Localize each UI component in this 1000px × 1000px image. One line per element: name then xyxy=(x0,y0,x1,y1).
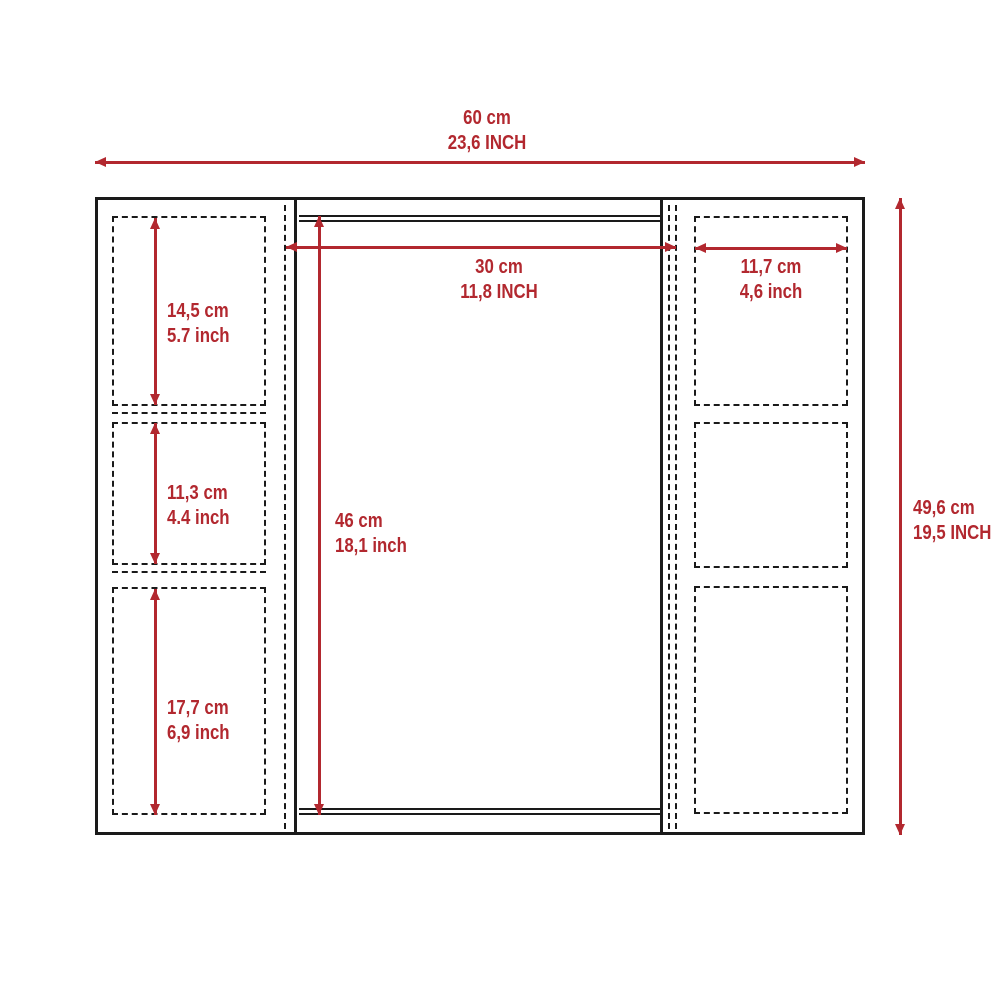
right-shelf-width-arrow xyxy=(695,247,847,250)
left-shelf-bottom-height-arrow xyxy=(154,589,157,815)
right-shelf-width-inch: 4,6 inch xyxy=(712,280,830,305)
overall-height-inch: 19,5 INCH xyxy=(913,521,991,546)
overall-height-label: 49,6 cm 19,5 INCH xyxy=(913,496,991,546)
left-shelf-top-label: 14,5 cm 5.7 inch xyxy=(167,299,230,349)
mirror-width-arrow xyxy=(286,246,676,249)
mirror-height-inch: 18,1 inch xyxy=(335,534,407,559)
right-center-divider-line xyxy=(660,199,663,833)
left-shelf-divider-2-dashed-line xyxy=(112,571,266,573)
mirror-width-cm: 30 cm xyxy=(440,255,558,280)
mirror-height-arrow xyxy=(318,216,321,815)
right-shelf-middle-dashed-box xyxy=(694,422,848,568)
overall-height-arrow xyxy=(899,198,902,835)
left-shelf-middle-label: 11,3 cm 4.4 inch xyxy=(167,481,230,531)
overall-width-label: 60 cm 23,6 INCH xyxy=(428,106,546,156)
overall-width-inch: 23,6 INCH xyxy=(428,131,546,156)
left-shelf-middle-cm: 11,3 cm xyxy=(167,481,230,506)
right-shelf-bottom-dashed-box xyxy=(694,586,848,814)
left-shelf-bottom-inch: 6,9 inch xyxy=(167,721,230,746)
mirror-height-label: 46 cm 18,1 inch xyxy=(335,509,407,559)
right-shelf-width-cm: 11,7 cm xyxy=(712,255,830,280)
left-shelf-top-inch: 5.7 inch xyxy=(167,324,230,349)
right-shelf-width-label: 11,7 cm 4,6 inch xyxy=(712,255,830,305)
left-door-edge-dashed-line xyxy=(284,205,286,829)
right-door-edge-dashed-line-inner xyxy=(668,205,670,829)
right-door-edge-dashed-line-outer xyxy=(675,205,677,829)
mirror-width-label: 30 cm 11,8 INCH xyxy=(440,255,558,305)
left-shelf-bottom-label: 17,7 cm 6,9 inch xyxy=(167,696,230,746)
overall-width-cm: 60 cm xyxy=(428,106,546,131)
mirror-width-inch: 11,8 INCH xyxy=(440,280,558,305)
overall-width-arrow xyxy=(95,161,865,164)
mirror-top-frame-line xyxy=(299,215,660,222)
left-shelf-top-height-arrow xyxy=(154,218,157,405)
left-shelf-bottom-cm: 17,7 cm xyxy=(167,696,230,721)
left-center-divider-line xyxy=(294,199,297,833)
left-shelf-middle-inch: 4.4 inch xyxy=(167,506,230,531)
mirror-height-cm: 46 cm xyxy=(335,509,407,534)
right-shelf-top-dashed-box xyxy=(694,216,848,406)
mirror-bottom-frame-line xyxy=(299,808,660,815)
left-shelf-top-cm: 14,5 cm xyxy=(167,299,230,324)
overall-height-cm: 49,6 cm xyxy=(913,496,991,521)
cabinet-dimension-diagram: 60 cm 23,6 INCH 49,6 cm 19,5 INCH 30 cm … xyxy=(0,0,1000,1000)
left-shelf-middle-height-arrow xyxy=(154,423,157,564)
left-shelf-divider-1-dashed-line xyxy=(112,412,266,414)
